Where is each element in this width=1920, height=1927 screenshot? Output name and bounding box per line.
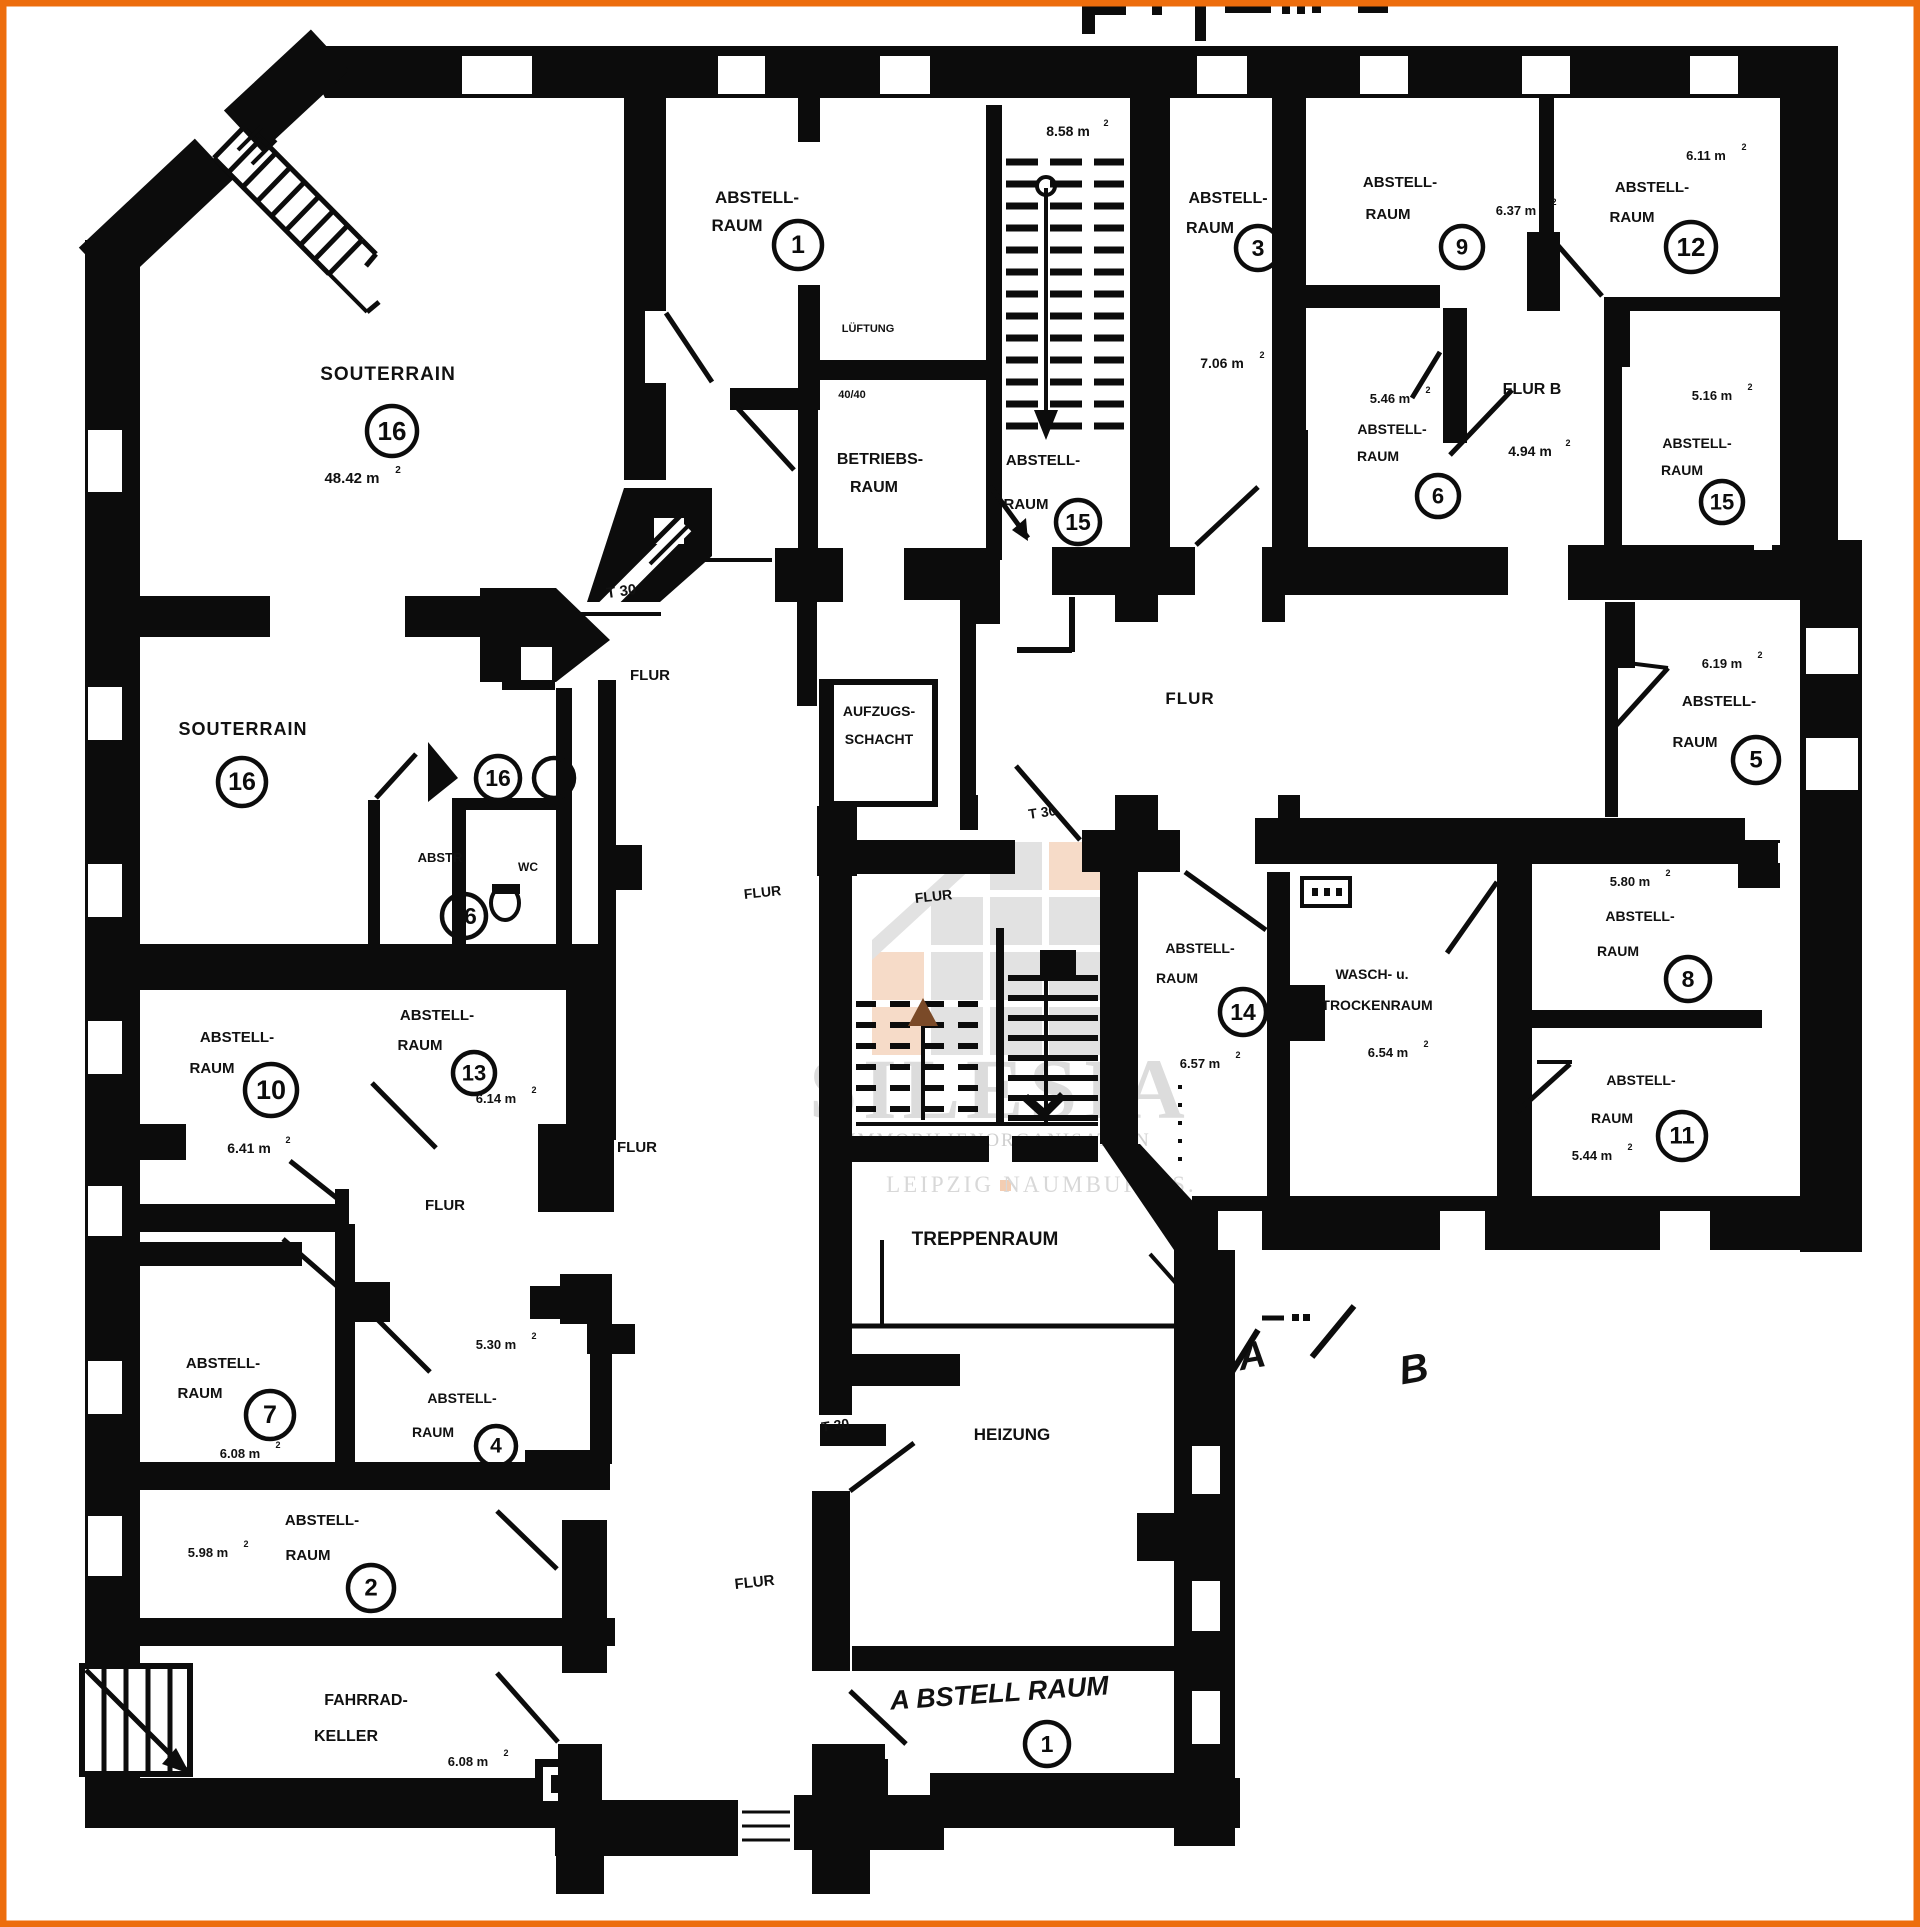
svg-text:2: 2 — [503, 1748, 508, 1758]
svg-text:RAUM: RAUM — [412, 1424, 454, 1440]
svg-text:2: 2 — [531, 1331, 536, 1341]
svg-text:ABSTELL-: ABSTELL- — [427, 1390, 497, 1406]
svg-text:ABSTELL-: ABSTELL- — [1188, 190, 1267, 207]
svg-text:2: 2 — [1665, 868, 1670, 878]
svg-text:5.30 m: 5.30 m — [476, 1337, 516, 1352]
svg-text:ABSTELL-: ABSTELL- — [1357, 421, 1427, 437]
svg-text:RAUM: RAUM — [398, 1037, 443, 1054]
svg-text:5: 5 — [1749, 747, 1762, 774]
svg-text:RAUM: RAUM — [1186, 220, 1234, 237]
svg-text:2: 2 — [1741, 142, 1746, 152]
svg-text:ABSTELL-: ABSTELL- — [200, 1029, 274, 1046]
svg-text:40/40: 40/40 — [838, 389, 866, 401]
svg-text:14: 14 — [1230, 999, 1256, 1025]
svg-text:WC: WC — [518, 860, 538, 874]
svg-text:RAUM: RAUM — [1366, 206, 1411, 223]
svg-text:8: 8 — [1682, 966, 1695, 992]
svg-text:5.80 m: 5.80 m — [1610, 874, 1650, 889]
svg-text:6.57 m: 6.57 m — [1180, 1056, 1220, 1071]
svg-text:2: 2 — [1423, 1039, 1428, 1049]
svg-text:FLUR: FLUR — [425, 1197, 465, 1214]
svg-text:BETRIEBS-: BETRIEBS- — [837, 451, 923, 468]
svg-text:SCHACHT: SCHACHT — [845, 731, 914, 747]
svg-text:KELLER: KELLER — [314, 1728, 378, 1745]
svg-text:RAUM: RAUM — [1673, 734, 1718, 751]
svg-text:6.11 m: 6.11 m — [1686, 148, 1726, 163]
svg-text:1: 1 — [791, 231, 805, 259]
svg-text:2: 2 — [531, 1085, 536, 1095]
svg-text:2: 2 — [243, 1539, 248, 1549]
svg-text:RAUM: RAUM — [1357, 448, 1399, 464]
svg-text:2: 2 — [1235, 1050, 1240, 1060]
svg-text:8.58 m: 8.58 m — [1046, 123, 1090, 139]
svg-text:RAUM: RAUM — [178, 1385, 223, 1402]
svg-text:FLUR: FLUR — [617, 1139, 657, 1156]
svg-text:ABSTELL-: ABSTELL- — [1006, 452, 1080, 469]
svg-text:2: 2 — [1747, 382, 1752, 392]
svg-text:ABSTELL-: ABSTELL- — [186, 1355, 260, 1372]
svg-text:2: 2 — [1259, 350, 1264, 360]
svg-text:6: 6 — [1432, 484, 1444, 509]
svg-text:ABSTELL-: ABSTELL- — [1363, 174, 1437, 191]
svg-text:48.42 m: 48.42 m — [324, 470, 379, 487]
svg-text:RAUM: RAUM — [1661, 462, 1703, 478]
svg-text:6.08 m: 6.08 m — [220, 1446, 260, 1461]
svg-text:RAUM: RAUM — [1610, 209, 1655, 226]
svg-text:2: 2 — [285, 1135, 290, 1145]
svg-text:RAUM: RAUM — [1597, 943, 1639, 959]
svg-text:TREPPENRAUM: TREPPENRAUM — [912, 1229, 1059, 1250]
svg-text:ABSTELL-: ABSTELL- — [715, 188, 799, 207]
svg-text:ABSTELL-: ABSTELL- — [285, 1512, 359, 1529]
svg-text:11: 11 — [1669, 1123, 1694, 1150]
svg-text:2: 2 — [1425, 385, 1430, 395]
svg-text:FAHRRAD-: FAHRRAD- — [324, 1692, 408, 1709]
svg-text:6.08 m: 6.08 m — [448, 1754, 488, 1769]
svg-text:13: 13 — [462, 1061, 486, 1086]
svg-text:15: 15 — [1710, 490, 1734, 515]
svg-text:5.16 m: 5.16 m — [1692, 388, 1732, 403]
svg-text:ABSTELL-: ABSTELL- — [400, 1007, 474, 1024]
svg-text:ABSTELL-: ABSTELL- — [1662, 435, 1732, 451]
svg-text:1: 1 — [1041, 1731, 1054, 1757]
svg-text:RAUM: RAUM — [286, 1547, 331, 1564]
svg-text:2: 2 — [364, 1575, 377, 1602]
svg-text:2: 2 — [1103, 118, 1108, 128]
svg-text:FLUR: FLUR — [630, 667, 670, 684]
svg-text:RAUM: RAUM — [1156, 970, 1198, 986]
svg-text:LEIPZIG: LEIPZIG — [886, 1172, 994, 1197]
svg-text:2: 2 — [395, 465, 401, 476]
svg-text:WASCH- u.: WASCH- u. — [1335, 966, 1408, 982]
svg-text:3: 3 — [1252, 235, 1265, 261]
svg-text:2: 2 — [1627, 1142, 1632, 1152]
svg-text:ABSTELL-: ABSTELL- — [1606, 1072, 1676, 1088]
svg-text:16: 16 — [485, 765, 511, 791]
svg-text:6.14 m: 6.14 m — [476, 1091, 516, 1106]
svg-text:16: 16 — [378, 416, 407, 446]
svg-text:7.06 m: 7.06 m — [1200, 355, 1244, 371]
svg-text:ABSTELL-: ABSTELL- — [1682, 693, 1756, 710]
svg-text:SOUTERRAIN: SOUTERRAIN — [320, 364, 456, 385]
svg-text:ABSTELL-: ABSTELL- — [1605, 908, 1675, 924]
svg-text:RAUM: RAUM — [850, 479, 898, 496]
svg-text:2: 2 — [1757, 650, 1762, 660]
svg-text:RAUM: RAUM — [1591, 1110, 1633, 1126]
svg-text:5.44 m: 5.44 m — [1572, 1148, 1612, 1163]
svg-text:2: 2 — [1551, 197, 1556, 207]
svg-text:2: 2 — [1565, 438, 1570, 448]
svg-text:15: 15 — [1065, 509, 1091, 535]
svg-text:FLUR: FLUR — [1165, 689, 1214, 708]
svg-text:6.37 m: 6.37 m — [1496, 203, 1536, 218]
svg-text:6.19 m: 6.19 m — [1702, 656, 1742, 671]
svg-text:ABSTR: ABSTR — [418, 850, 463, 865]
svg-text:FLUR B: FLUR B — [1503, 381, 1562, 398]
svg-text:2: 2 — [275, 1440, 280, 1450]
svg-text:RAUM: RAUM — [1004, 496, 1049, 513]
svg-text:RAUM: RAUM — [712, 216, 763, 235]
svg-text:ABSTELL-: ABSTELL- — [1615, 179, 1689, 196]
svg-text:4: 4 — [490, 1435, 502, 1458]
svg-text:16: 16 — [228, 768, 256, 796]
svg-text:AUFZUGS-: AUFZUGS- — [843, 703, 916, 719]
svg-text:RAUM: RAUM — [190, 1060, 235, 1077]
svg-text:16: 16 — [451, 903, 477, 929]
svg-text:10: 10 — [256, 1075, 286, 1105]
svg-text:HEIZUNG: HEIZUNG — [974, 1425, 1051, 1444]
svg-text:6.54 m: 6.54 m — [1368, 1045, 1408, 1060]
svg-text:6.41 m: 6.41 m — [227, 1140, 271, 1156]
svg-text:4.94 m: 4.94 m — [1508, 443, 1552, 459]
svg-text:LÜFTUNG: LÜFTUNG — [842, 322, 895, 335]
svg-text:12: 12 — [1677, 232, 1706, 262]
svg-text:9: 9 — [1456, 235, 1468, 260]
svg-text:TROCKENRAUM: TROCKENRAUM — [1321, 997, 1432, 1013]
svg-text:5.46 m: 5.46 m — [1370, 391, 1410, 406]
svg-text:ABSTELL-: ABSTELL- — [1165, 940, 1235, 956]
svg-text:5.98 m: 5.98 m — [188, 1545, 228, 1560]
svg-text:7: 7 — [263, 1401, 277, 1429]
svg-text:SOUTERRAIN: SOUTERRAIN — [178, 719, 307, 739]
